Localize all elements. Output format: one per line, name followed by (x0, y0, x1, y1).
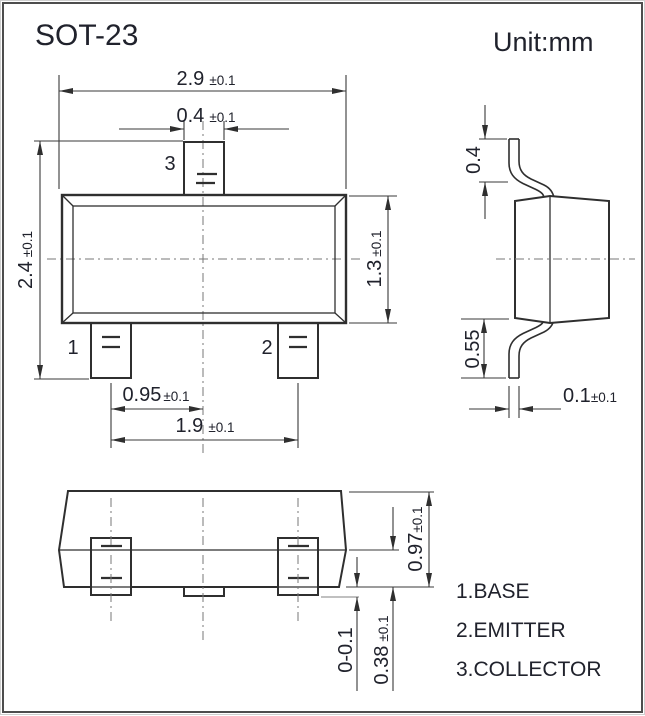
sot23-drawing: SOT-23 Unit:mm 3 (1, 1, 645, 716)
pin1-label: 1 (67, 337, 78, 359)
pin2-outline (278, 323, 318, 378)
pin2-label: 2 (261, 337, 272, 359)
pin1-outline (91, 323, 131, 378)
drawing-page: SOT-23 Unit:mm 3 (0, 0, 645, 715)
front-view: 0.97±0.1 0.38±0.1 0-0.1 (59, 491, 434, 691)
dim-tab-width: 0.4±0.1 (119, 105, 289, 140)
bevel-line (62, 313, 73, 323)
page-title: SOT-23 (35, 19, 138, 52)
lead-edge (509, 139, 544, 199)
dim-text: 0.95±0.1 (122, 384, 189, 406)
dim-lead-bottom-length: 0.55 (461, 319, 509, 378)
lead-edge (509, 318, 544, 378)
dim-text: 1.3±0.1 (364, 231, 386, 288)
dim-text: 0.38±0.1 (371, 615, 393, 684)
side-view: 0.4 0.55 0.1±0.1 (461, 105, 635, 418)
top-view: 3 1 2 2.9±0.1 0.4±0.1 (15, 68, 397, 453)
bevel-line (62, 195, 73, 206)
dim-text: 2.4±0.1 (15, 231, 37, 289)
dim-text: 0-0.1 (335, 627, 357, 673)
dim-text: 0.4 (463, 146, 485, 174)
bevel-line (335, 195, 346, 206)
top-lead (509, 139, 554, 199)
front-pin3-stub (184, 587, 224, 596)
dim-lead-top-length: 0.4 (463, 105, 508, 219)
legend-base: 1.BASE (456, 580, 530, 603)
legend-collector: 3.COLLECTOR (456, 658, 602, 681)
dim-text: 0.4±0.1 (177, 105, 236, 127)
dim-text: 0.55 (462, 330, 484, 369)
dim-package-height: 0.97±0.1 (346, 492, 434, 587)
bevel-line (335, 313, 346, 323)
dim-text: 2.9±0.1 (177, 68, 236, 90)
dim-text: 0.1±0.1 (563, 385, 617, 407)
dim-text: 1.9±0.1 (176, 415, 235, 437)
dim-lead-thickness: 0.1±0.1 (469, 385, 617, 418)
pin-legend: 1.BASE 2.EMITTER 3.COLLECTOR (456, 580, 602, 681)
bottom-lead (509, 318, 554, 378)
legend-emitter: 2.EMITTER (456, 619, 566, 642)
pin3-label: 3 (164, 153, 175, 175)
dim-overall-height: 2.4±0.1 (15, 141, 183, 379)
pin3-tab-outline (184, 142, 224, 195)
unit-label: Unit:mm (493, 27, 594, 57)
dim-text: 0.97±0.1 (405, 506, 427, 571)
